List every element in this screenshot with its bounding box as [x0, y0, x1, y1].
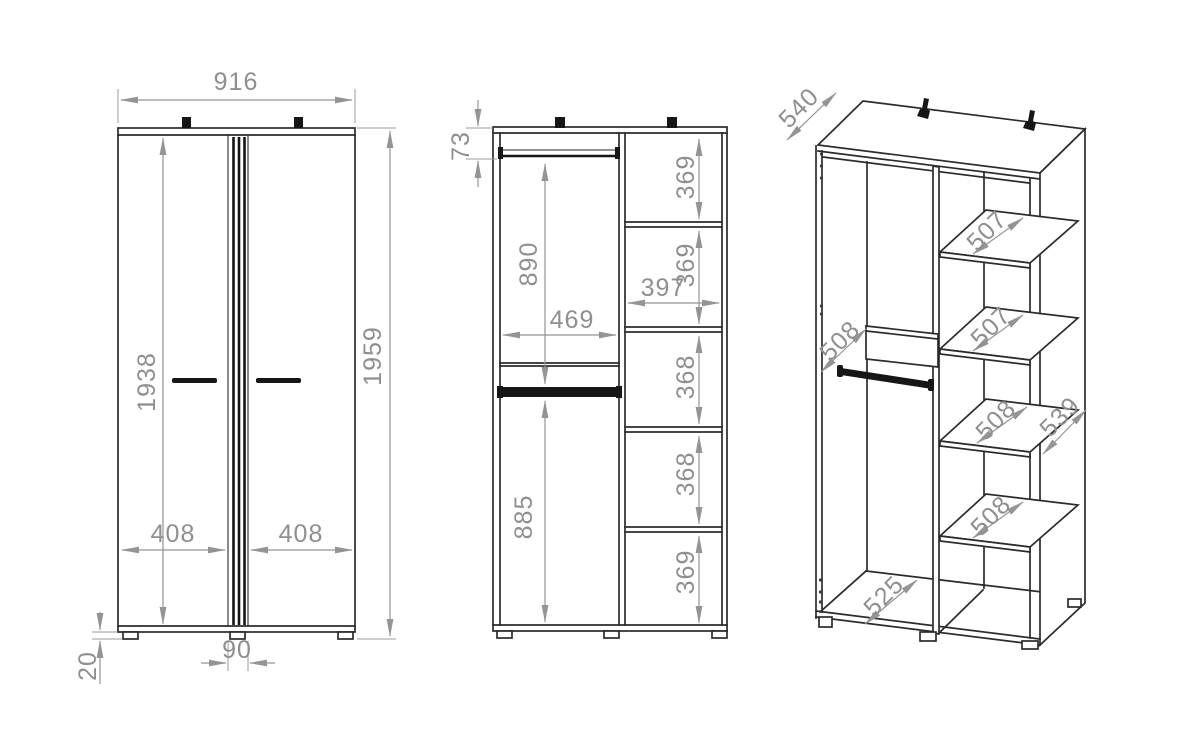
lower-clothes-rail — [497, 386, 622, 398]
dim-label-90: 90 — [222, 636, 252, 664]
svg-text:368: 368 — [672, 452, 700, 497]
dim-label-525: 525 — [858, 570, 909, 621]
svg-text:368: 368 — [672, 355, 700, 400]
dim-label-73: 73 — [447, 131, 475, 161]
svg-text:369: 369 — [672, 243, 700, 288]
feet — [497, 631, 727, 638]
svg-text:369: 369 — [672, 550, 700, 595]
dim-label-20: 20 — [74, 651, 102, 681]
dim-floor-depth: 525 — [858, 570, 917, 624]
dim-label-540: 540 — [773, 82, 824, 133]
front-view-with-doors: 916 1959 1938 408 408 90 — [74, 68, 396, 684]
interior-front-view: 73 890 469 885 397 369 369 368 — [447, 100, 727, 638]
dim-label-408-right: 408 — [279, 520, 324, 548]
dim-front-total-height: 1959 — [357, 128, 396, 639]
wardrobe-technical-drawing: 916 1959 1938 408 408 90 — [0, 0, 1200, 750]
dim-label-1938: 1938 — [133, 352, 161, 412]
dim-foot-height: 20 — [74, 612, 122, 684]
dim-label-885: 885 — [510, 495, 538, 540]
dim-label-469: 469 — [550, 306, 595, 334]
dim-label-916: 916 — [214, 68, 259, 96]
iso-clothes-rail — [837, 365, 934, 391]
dim-front-width: 916 — [118, 68, 355, 123]
dim-label-408-left: 408 — [151, 520, 196, 548]
svg-text:369: 369 — [672, 155, 700, 200]
dim-rail-offset: 73 — [447, 100, 497, 187]
dim-label-1959: 1959 — [359, 326, 387, 386]
dim-center-gap: 90 — [201, 636, 275, 671]
wall-bracket-icon — [182, 117, 303, 128]
dim-label-890: 890 — [515, 242, 543, 287]
dim-top-depth: 540 — [773, 82, 836, 140]
isometric-view: 540 508 507 507 508 508 539 525 — [773, 82, 1086, 649]
back-panel-piece — [866, 326, 938, 367]
